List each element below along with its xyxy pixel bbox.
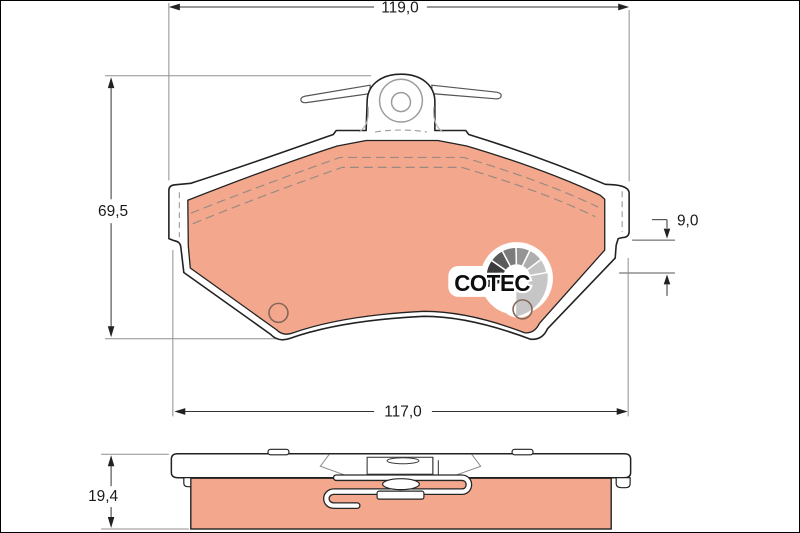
backplate-left-lip: [184, 478, 191, 487]
backplate-right-lip: [616, 478, 630, 488]
mounting-tab-hole: [392, 93, 411, 112]
dimension-label-pad-height: 69,5: [98, 203, 128, 220]
clip-hump: [383, 479, 420, 490]
technical-drawing: 119,0 69,5: [0, 0, 800, 533]
front-view: COTEC: [169, 74, 629, 340]
logo-text: COTEC: [454, 270, 530, 296]
center-tab-pill: [387, 458, 419, 464]
clip-plate: [377, 491, 424, 499]
wear-indicator-right-wing: [432, 85, 501, 99]
backplate-top-tab-left: [268, 449, 289, 454]
dimension-label-top-width: 119,0: [381, 1, 419, 16]
dimension-label-side-thickness: 19,4: [88, 488, 118, 505]
wear-indicator-left-wing: [301, 85, 370, 103]
technical-drawing-canvas: 119,0 69,5: [1, 1, 799, 532]
side-view: [171, 449, 630, 529]
dimension-label-lug-step: 9,0: [677, 213, 698, 230]
backplate-top-tab-right: [512, 449, 533, 454]
dimension-lug-step: 9,0: [619, 213, 698, 296]
dimension-label-bottom-width: 117,0: [384, 403, 422, 420]
